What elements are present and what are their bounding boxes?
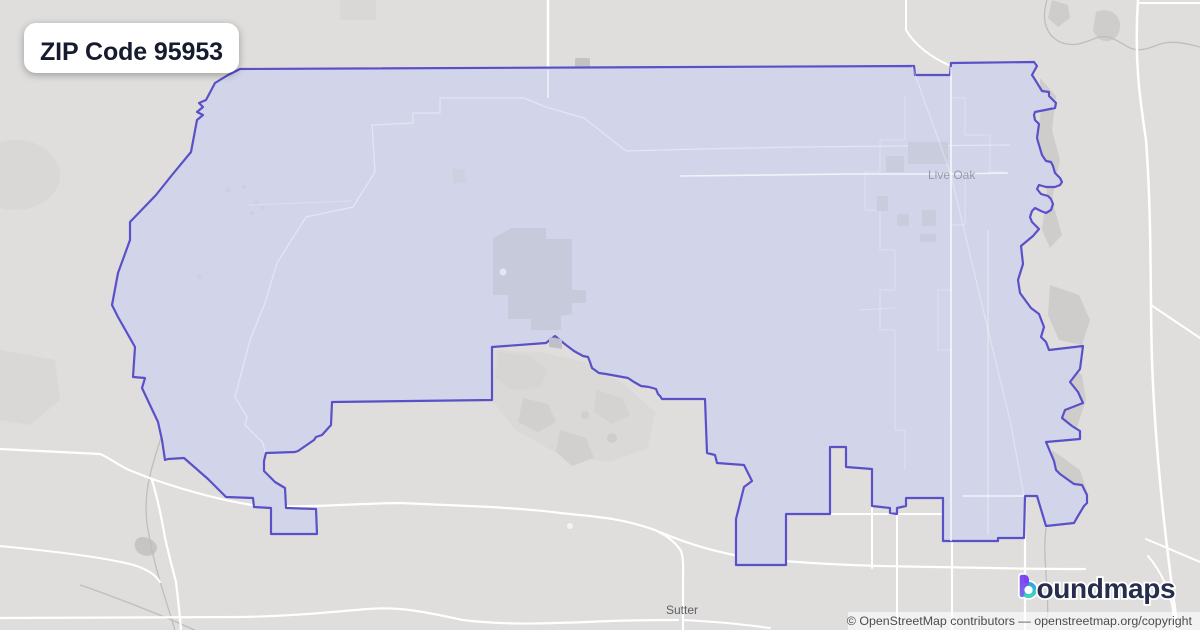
- svg-text:oundmaps: oundmaps: [1037, 573, 1176, 604]
- svg-text:ZIP Code 95953: ZIP Code 95953: [40, 38, 223, 66]
- svg-text:Live Oak: Live Oak: [928, 168, 976, 182]
- svg-text:Sutter: Sutter: [666, 603, 698, 617]
- svg-text:© OpenStreetMap contributors —: © OpenStreetMap contributors — openstree…: [847, 614, 1193, 628]
